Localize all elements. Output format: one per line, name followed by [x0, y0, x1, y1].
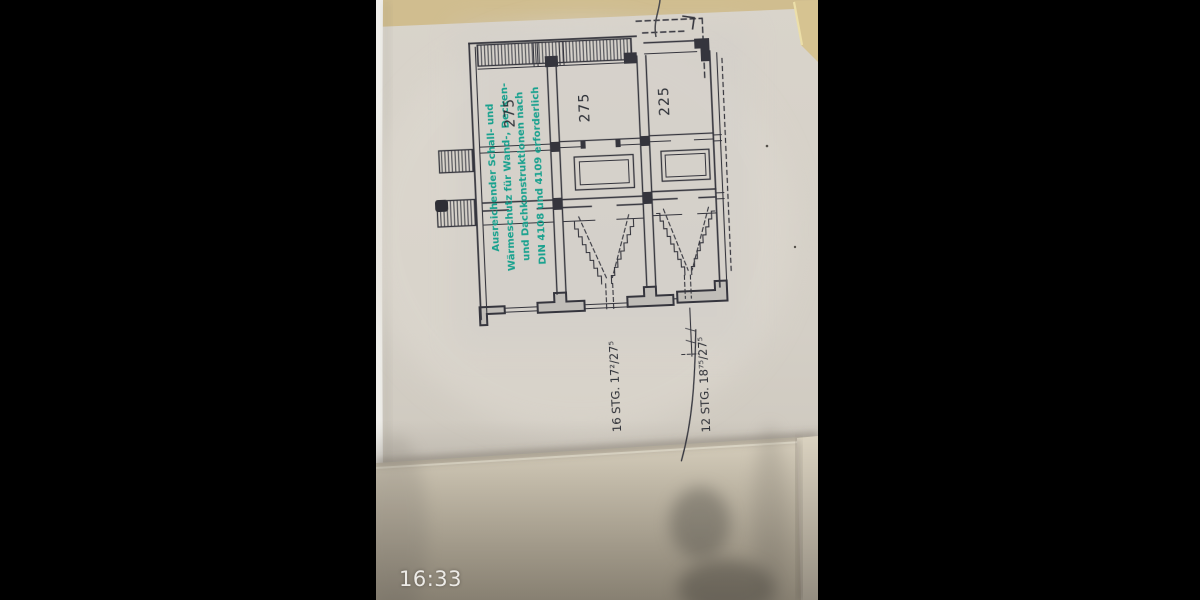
room-label-left: 275: [501, 98, 518, 128]
room-label-right: 225: [656, 86, 673, 116]
letterbox-left: [0, 0, 376, 600]
chimney-2: [435, 198, 476, 227]
chimney-1: [439, 149, 474, 172]
timestamp-overlay: 16:33: [399, 567, 479, 591]
book-page-photo: Ausreichender Schall- und Wärmeschutz fü…: [376, 0, 818, 600]
page-background: [376, 0, 818, 600]
video-frame: Ausreichender Schall- und Wärmeschutz fü…: [0, 0, 1200, 600]
room-label-middle: 275: [576, 92, 593, 122]
photo-of-book-page[interactable]: Ausreichender Schall- und Wärmeschutz fü…: [376, 0, 818, 600]
letterbox-right: [818, 0, 1200, 600]
